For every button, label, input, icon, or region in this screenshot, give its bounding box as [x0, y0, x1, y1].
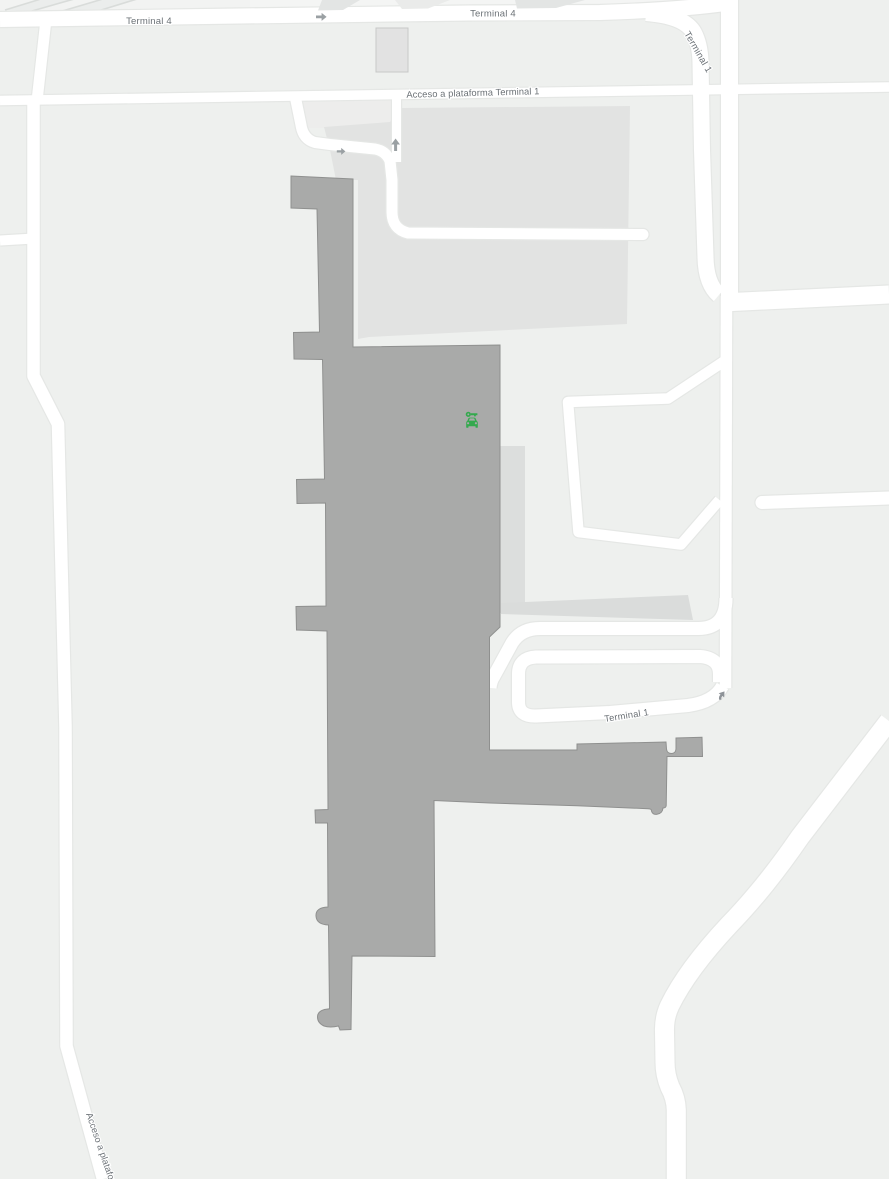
- svg-text:Terminal 4: Terminal 4: [126, 16, 172, 27]
- svg-text:Terminal 4: Terminal 4: [470, 9, 516, 20]
